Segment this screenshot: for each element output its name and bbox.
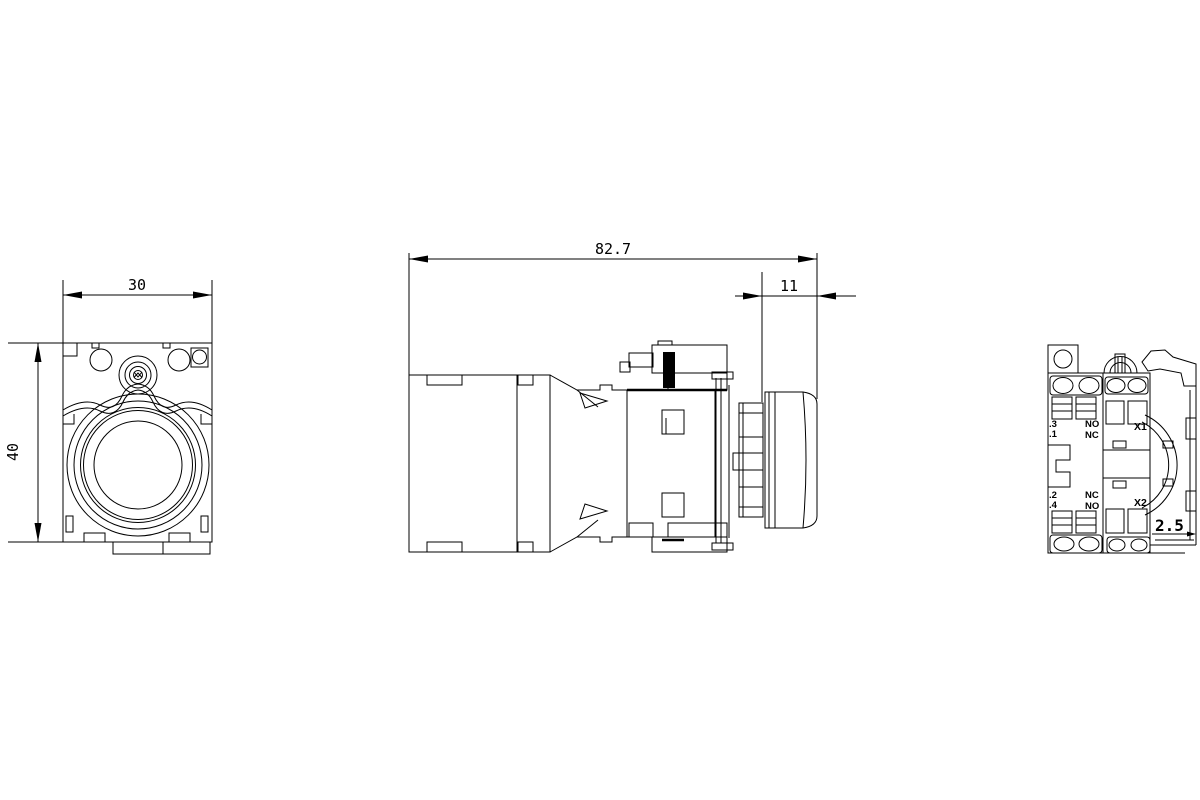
terminal-label: .4 [1049,500,1058,511]
depth-dim-value: 2.5 [1155,516,1184,535]
cap-length-value: 11 [780,277,798,295]
contact-type-label: NO [1085,419,1099,430]
lamp-terminal-label: X2 [1134,497,1147,509]
plunger-bar [663,352,675,388]
contact-type-label: NC [1085,490,1099,501]
terminal-label: .1 [1049,429,1058,440]
canvas-background [0,0,1200,800]
contact-type-label: NC [1085,430,1099,441]
front-height-value: 40 [4,443,22,461]
lamp-terminal-label: X1 [1134,421,1147,433]
side-length-value: 82.7 [595,240,631,258]
technical-drawing: 30 40 [0,0,1200,800]
drawing-canvas: 30 40 [0,0,1200,800]
front-width-value: 30 [128,276,146,294]
contact-type-label: NO [1085,501,1099,512]
